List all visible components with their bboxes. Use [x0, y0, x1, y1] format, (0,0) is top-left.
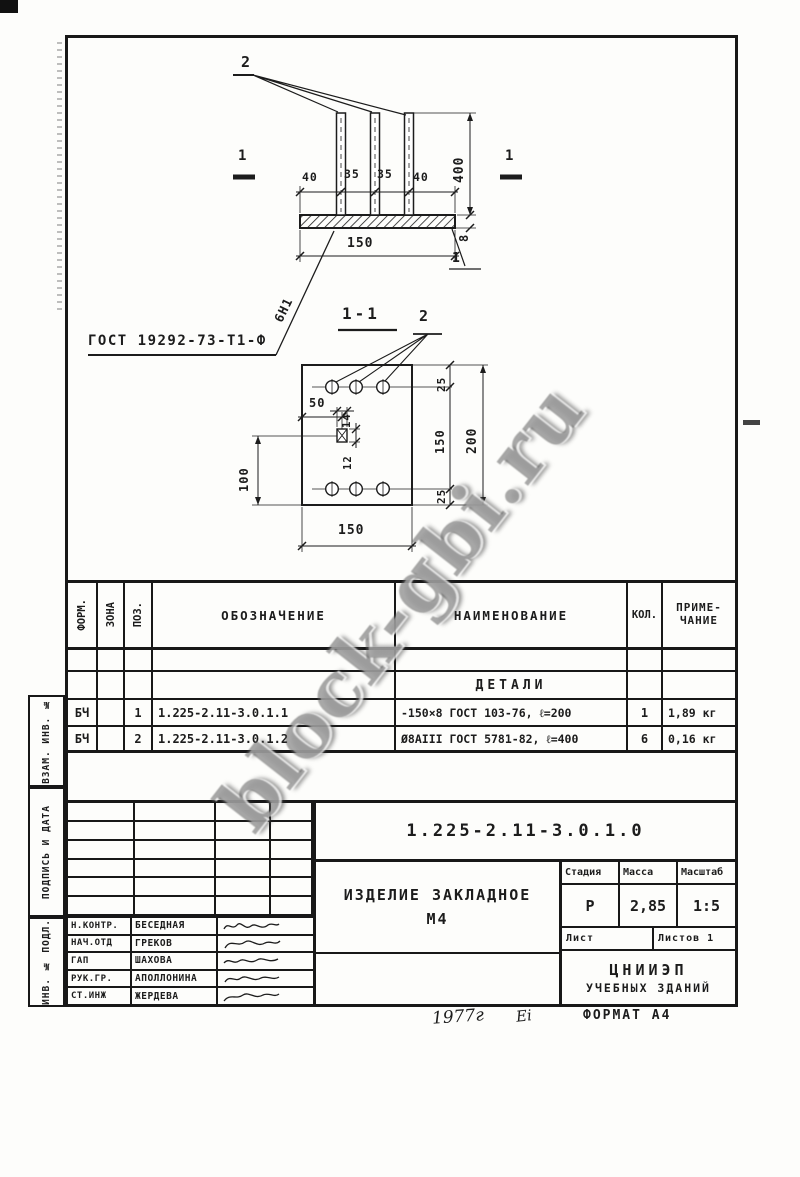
revision-cell [216, 803, 271, 822]
empty-cell [628, 650, 663, 672]
scale-label: Масштаб [678, 862, 735, 885]
vzam-inv-label: ВЗАМ. ИНВ. № [41, 698, 52, 784]
signature-scribble [218, 986, 313, 1004]
revision-cell [216, 841, 271, 860]
col-header-name: НАИМЕНОВАНИЕ [396, 583, 628, 650]
revision-cell [216, 860, 271, 879]
scan-corner-mark [0, 0, 18, 13]
sheets-label: Листов [658, 933, 700, 944]
row1-designation: 1.225-2.11-3.0.1.1 [153, 700, 396, 727]
revision-cell [68, 897, 135, 916]
dim-14: 14 [341, 413, 353, 428]
section-view-linework [252, 330, 488, 552]
front-and-section-drawing [65, 35, 738, 580]
revision-cell [216, 878, 271, 897]
dim-200: 200 [465, 428, 480, 454]
mass-label: Масса [620, 862, 678, 885]
margin-fine-print [57, 42, 62, 310]
empty-cell [98, 650, 125, 672]
section-mark-left-label: 1 [238, 148, 247, 164]
col-header-qty: КОЛ. [628, 583, 663, 650]
podpis-data-label: ПОДПИСЬ И ДАТА [41, 805, 52, 899]
revision-cell [216, 822, 271, 841]
col-header-zone: ЗОНА [98, 583, 125, 650]
sheets-value: 1 [707, 933, 714, 944]
revision-cell [135, 860, 216, 879]
revision-cell [135, 897, 216, 916]
revision-cell [135, 803, 216, 822]
inv-podl-label: ИНВ. № ПОДЛ. [41, 919, 52, 1005]
title-block-left: Н.КОНТР. БЕСЕДНАЯ НАЧ.ОТД ГРЕКОВ ГАП ШАХ… [68, 803, 313, 1004]
dim-150-middle: 150 [433, 429, 447, 454]
row1-form: БЧ [68, 700, 98, 727]
signature-scribble [218, 951, 313, 969]
margin-box-inv-podl: ИНВ. № ПОДЛ. [28, 917, 65, 1007]
empty-cell [98, 672, 125, 700]
dim-150-front: 150 [347, 236, 373, 251]
row2-pos: 2 [125, 727, 153, 750]
empty-cell [125, 650, 153, 672]
section-callout-2: 2 [419, 307, 429, 325]
dim-50: 50 [309, 396, 325, 410]
revision-cell [271, 878, 313, 897]
empty-cell [68, 672, 98, 700]
empty-cell [153, 672, 396, 700]
zone-header-text: ЗОНА [105, 602, 117, 627]
product-title-column: ИЗДЕЛИЕ ЗАКЛАДНОЕ М4 [316, 862, 559, 1004]
col-header-pos: ПОЗ. [125, 583, 153, 650]
dim-25-top: 25 [435, 377, 448, 392]
margin-box-podpis-data: ПОДПИСЬ И ДАТА [28, 787, 65, 917]
dim-40-right: 40 [413, 170, 429, 184]
row1-note: 1,89 кг [663, 700, 735, 727]
stage-value: Р [562, 885, 620, 928]
revision-cell [271, 860, 313, 879]
signature-grid: Н.КОНТР. БЕСЕДНАЯ НАЧ.ОТД ГРЕКОВ ГАП ШАХ… [68, 916, 313, 1004]
dim-400: 400 [452, 157, 467, 183]
row2-name: Ø8АIII ГОСТ 5781-82, ℓ=400 [396, 727, 628, 750]
dim-100: 100 [237, 467, 251, 492]
drawing-sheet: ВЗАМ. ИНВ. № ПОДПИСЬ И ДАТА ИНВ. № ПОДЛ. [0, 0, 800, 1177]
empty-cell [125, 672, 153, 700]
row1-qty: 1 [628, 700, 663, 727]
mass-value: 2,85 [620, 885, 678, 928]
dim-12: 12 [342, 455, 354, 470]
revision-cell [135, 822, 216, 841]
front-callout-2: 2 [241, 53, 251, 71]
dim-35-b: 35 [377, 167, 393, 181]
revision-cell [135, 878, 216, 897]
revision-cell [271, 803, 313, 822]
front-callout-1: 1 [452, 251, 461, 266]
row2-form: БЧ [68, 727, 98, 750]
organization: ЦНИИЭП УЧЕБНЫХ ЗДАНИЙ [562, 951, 735, 1004]
sig-role-4: СТ.ИНЖ [68, 986, 132, 1004]
scale-value: 1:5 [678, 885, 735, 928]
title-block: Н.КОНТР. БЕСЕДНАЯ НАЧ.ОТД ГРЕКОВ ГАП ШАХ… [65, 800, 738, 1007]
row1-zone [98, 700, 125, 727]
note-header-text: ПРИМЕ- ЧАНИЕ [676, 602, 722, 627]
document-number: 1.225-2.11-3.0.1.0 [316, 803, 735, 862]
dim-150-bottom: 150 [338, 523, 364, 538]
sig-name-4: ЖЕРДЕВА [132, 986, 218, 1004]
stage-mass-scale-block: Стадия Масса Масштаб Р 2,85 1:5 Лист Лис… [559, 862, 735, 1004]
revision-cell [68, 822, 135, 841]
scan-edge-artifact [743, 420, 760, 425]
empty-cell [663, 650, 735, 672]
revision-grid [68, 803, 313, 916]
dim-8: 8 [457, 234, 471, 242]
empty-cell [628, 672, 663, 700]
section-mark-right-label: 1 [505, 148, 514, 164]
sig-name-1: ГРЕКОВ [132, 934, 218, 952]
pos-header-text: ПОЗ. [132, 602, 144, 627]
group-title-detali: ДЕТАЛИ [396, 672, 628, 700]
sig-name-3: АПОЛЛОНИНА [132, 969, 218, 987]
stage-mass-scale-values: Р 2,85 1:5 [562, 885, 735, 928]
product-title: ИЗДЕЛИЕ ЗАКЛАДНОЕ М4 [316, 862, 559, 954]
sheet-row: Лист Листов 1 [562, 928, 735, 951]
revision-cell [271, 841, 313, 860]
revision-cell [271, 822, 313, 841]
organization-line2: УЧЕБНЫХ ЗДАНИЙ [586, 981, 711, 995]
sig-role-2: ГАП [68, 951, 132, 969]
empty-cell [396, 650, 628, 672]
front-view-linework [88, 75, 522, 355]
revision-cell [68, 841, 135, 860]
weld-gost-label: ГОСТ 19292-73-Т1-Ф [88, 333, 267, 349]
col-header-designation: ОБОЗНАЧЕНИЕ [153, 583, 396, 650]
section-view-title: 1-1 [342, 304, 380, 323]
revision-cell [68, 803, 135, 822]
row2-note: 0,16 кг [663, 727, 735, 750]
margin-box-vzam-inv: ВЗАМ. ИНВ. № [28, 695, 65, 787]
row1-name: -150×8 ГОСТ 103-76, ℓ=200 [396, 700, 628, 727]
signature-scribble [218, 934, 313, 952]
sheets-cell: Листов 1 [654, 928, 735, 949]
dim-40-left: 40 [302, 170, 318, 184]
row2-qty: 6 [628, 727, 663, 750]
organization-line1: ЦНИИЭП [609, 961, 687, 979]
empty-cell [68, 650, 98, 672]
title-block-right: 1.225-2.11-3.0.1.0 ИЗДЕЛИЕ ЗАКЛАДНОЕ М4 … [313, 803, 735, 1004]
revision-cell [68, 878, 135, 897]
signature-scribble [218, 969, 313, 987]
sig-role-0: Н.КОНТР. [68, 916, 132, 934]
handwritten-mark: Ei [515, 1006, 533, 1026]
empty-cell [316, 954, 559, 1004]
sheet-label: Лист [562, 928, 654, 949]
sig-name-2: ШАХОВА [132, 951, 218, 969]
revision-cell [68, 860, 135, 879]
empty-cell [663, 672, 735, 700]
row2-zone [98, 727, 125, 750]
empty-cell [153, 650, 396, 672]
format-note: ФОРМАТ А4 [583, 1008, 671, 1023]
sig-name-0: БЕСЕДНАЯ [132, 916, 218, 934]
row2-designation: 1.225-2.11-3.0.1.2 [153, 727, 396, 750]
title-block-lower: ИЗДЕЛИЕ ЗАКЛАДНОЕ М4 Стадия Масса Масшта… [316, 862, 735, 1004]
product-title-line2: М4 [426, 910, 448, 928]
signature-scribble [218, 916, 313, 934]
sig-role-3: РУК.ГР. [68, 969, 132, 987]
revision-cell [135, 841, 216, 860]
revision-cell [271, 897, 313, 916]
handwritten-year: 1977г [431, 1005, 484, 1029]
row1-pos: 1 [125, 700, 153, 727]
col-header-form: ФОРМ. [68, 583, 98, 650]
product-title-line1: ИЗДЕЛИЕ ЗАКЛАДНОЕ [344, 886, 532, 904]
stage-label: Стадия [562, 862, 620, 885]
col-header-note: ПРИМЕ- ЧАНИЕ [663, 583, 735, 650]
parts-table: ФОРМ. ЗОНА ПОЗ. ОБОЗНАЧЕНИЕ НАИМЕНОВАНИЕ… [65, 580, 738, 753]
revision-cell [216, 897, 271, 916]
note-header-line2: ЧАНИЕ [680, 615, 718, 628]
sig-role-1: НАЧ.ОТД [68, 934, 132, 952]
stage-mass-scale-header: Стадия Масса Масштаб [562, 862, 735, 885]
form-header-text: ФОРМ. [76, 599, 88, 631]
dim-35-a: 35 [344, 167, 360, 181]
dim-25-bottom: 25 [435, 489, 448, 504]
